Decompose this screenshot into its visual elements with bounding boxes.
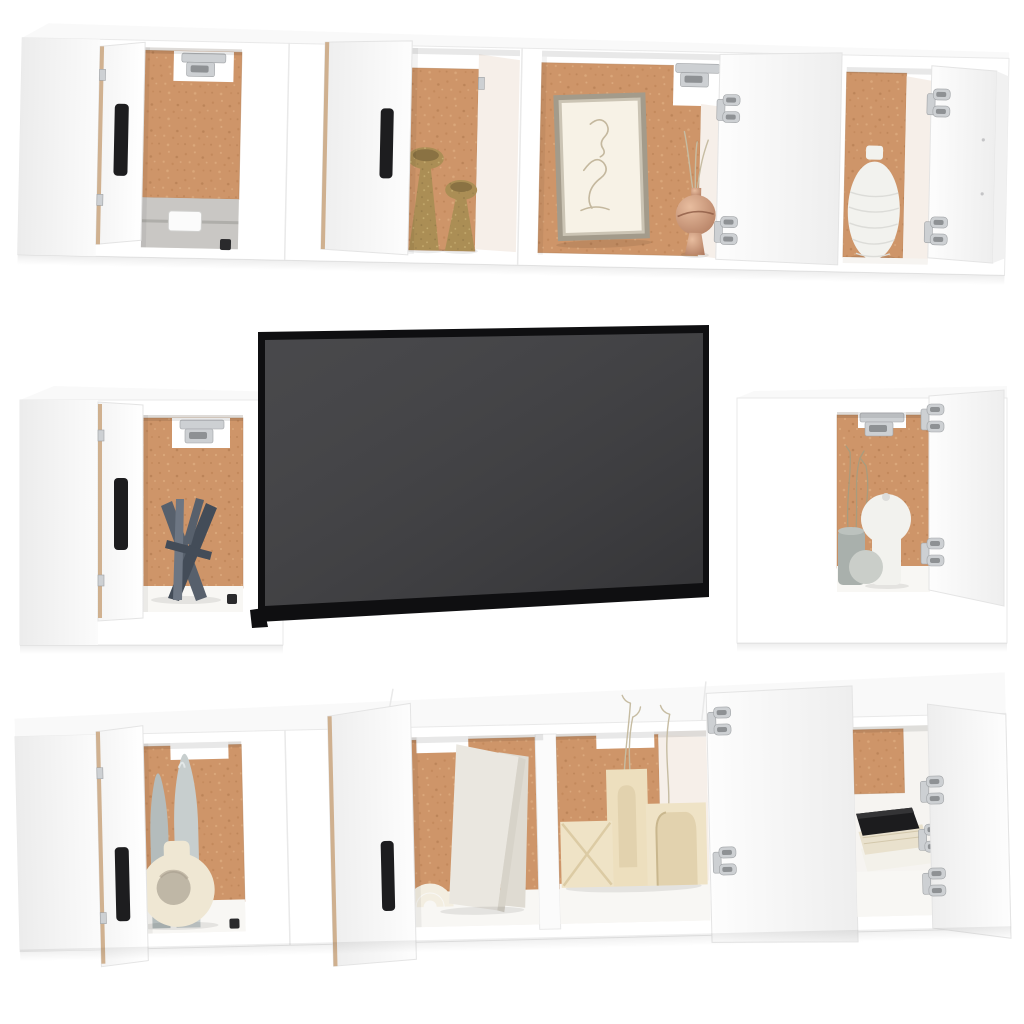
- door-handle: [115, 847, 131, 921]
- framed-line-art: [551, 92, 652, 249]
- product-image: [0, 0, 1024, 1024]
- wall-plate: [168, 211, 201, 232]
- tv-stand-row: [14, 672, 1011, 973]
- door-handle: [379, 108, 393, 178]
- stand-door-2: [327, 703, 422, 966]
- logo-tag: [229, 918, 239, 928]
- top-wall-cabinet-row: [17, 23, 1009, 286]
- top-cabinet-3-door: [714, 50, 842, 265]
- middle-right-door: [921, 390, 1004, 606]
- stand-door-4: [919, 702, 1012, 940]
- stand-left-side-panel: [15, 735, 101, 952]
- stand-door-3: [706, 686, 858, 945]
- top-row-left-side-panel: [18, 38, 101, 257]
- top-cabinet-2-interior: [404, 48, 520, 256]
- top-cabinet-3-interior: [538, 51, 720, 263]
- top-cabinet-4-interior: [843, 67, 932, 265]
- door-handle: [113, 104, 129, 176]
- hinge-icon: [100, 913, 106, 924]
- left-side-panel: [20, 400, 98, 645]
- stand-interior-2: [407, 734, 561, 932]
- top-cabinet-1-door: [96, 41, 145, 245]
- logo-tag: [227, 594, 237, 604]
- hinge-icon: [97, 194, 103, 205]
- middle-left-wall-cabinet: [20, 386, 283, 654]
- logo-tag: [220, 239, 231, 250]
- door-handle: [381, 841, 396, 911]
- television: [250, 325, 709, 628]
- door-handle: [114, 478, 128, 550]
- hinge-icon: [99, 69, 105, 80]
- middle-right-wall-cabinet: [737, 386, 1007, 652]
- stand-interior-1: [134, 741, 245, 933]
- hinge-icon: [98, 430, 104, 441]
- stand-door-1: [96, 726, 149, 967]
- tv-cabinet-set-render: [0, 0, 1024, 1024]
- top-cabinet-1-interior: [141, 47, 242, 250]
- hinge-icon: [478, 77, 484, 89]
- grey-sphere: [849, 550, 883, 584]
- top-cabinet-4-door: [924, 66, 1009, 264]
- top-cabinet-2-door: [321, 39, 418, 255]
- middle-left-door: [98, 402, 143, 621]
- hinge-icon: [98, 575, 104, 586]
- middle-right-interior: [837, 412, 930, 592]
- middle-left-interior: [143, 415, 243, 612]
- hinge-icon: [97, 768, 103, 779]
